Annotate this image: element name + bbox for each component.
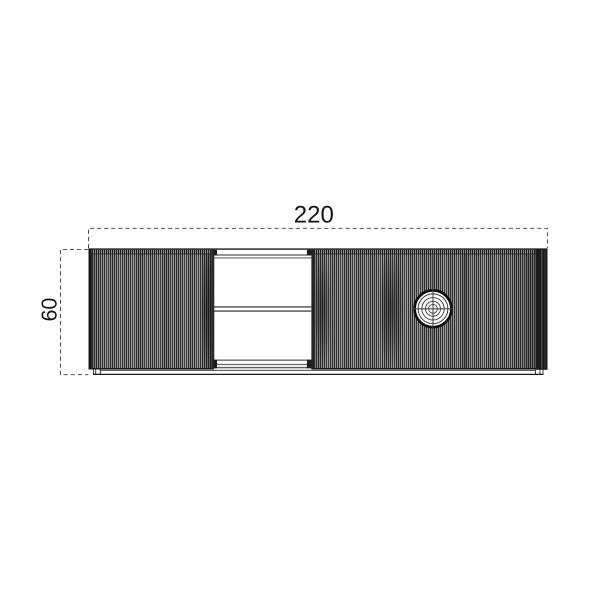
- svg-text:60: 60: [38, 298, 62, 322]
- svg-text:220: 220: [294, 201, 334, 228]
